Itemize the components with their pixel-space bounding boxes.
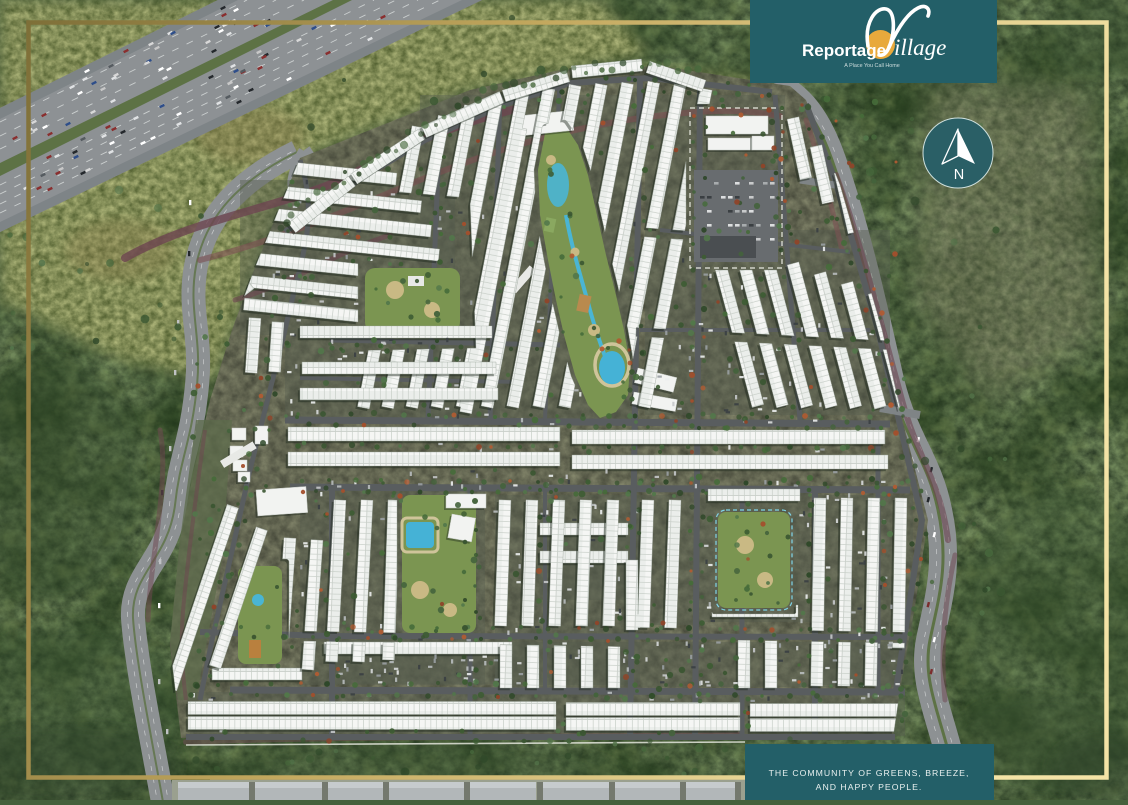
svg-text:THE COMMUNITY OF GREENS, BREEZ: THE COMMUNITY OF GREENS, BREEZE, bbox=[769, 768, 970, 778]
svg-text:illage: illage bbox=[894, 35, 946, 60]
svg-text:A Place You Call Home: A Place You Call Home bbox=[844, 63, 899, 69]
svg-text:AND HAPPY PEOPLE.: AND HAPPY PEOPLE. bbox=[816, 782, 923, 792]
svg-text:N: N bbox=[954, 167, 964, 183]
svg-text:Reportage: Reportage bbox=[802, 41, 886, 60]
